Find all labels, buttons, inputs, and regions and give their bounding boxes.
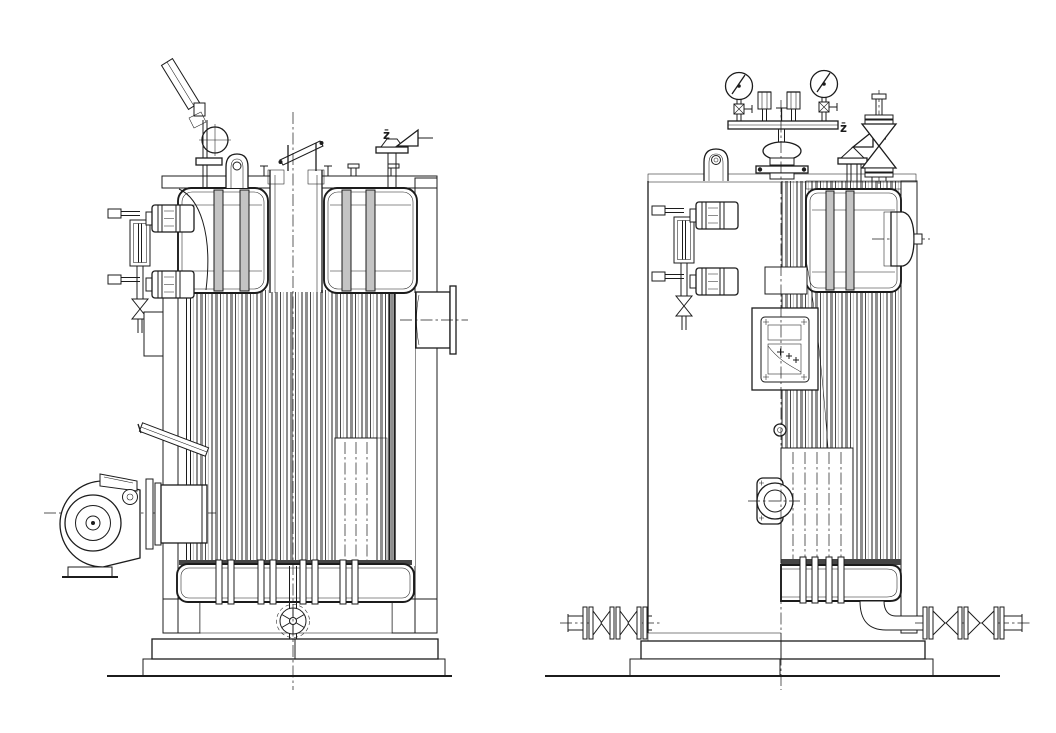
nameplate — [765, 267, 807, 294]
stud-bolt — [348, 164, 359, 176]
chimney — [260, 141, 332, 293]
boiler-drawing: z̄ — [0, 0, 1056, 733]
foundation — [143, 639, 445, 676]
probe-block-left — [758, 92, 771, 121]
lifting-lug — [704, 149, 728, 181]
sight-glass — [774, 424, 786, 436]
burner-barrel — [146, 479, 207, 549]
safety-valve-label: z̄ — [383, 128, 390, 142]
thermometer — [162, 59, 232, 188]
probe-block-right — [787, 92, 800, 121]
safety-valve: z̄ — [376, 128, 433, 188]
boiler-drawing-sheet: z̄ — [0, 0, 1056, 733]
stud-bolt — [388, 164, 399, 176]
lifting-lug — [226, 154, 248, 188]
control-panel — [752, 308, 818, 390]
pressure-gauge-right — [811, 71, 838, 122]
bottom-header — [781, 557, 901, 603]
main-steam-valve — [756, 108, 808, 179]
blowdown-valves-left — [560, 607, 660, 639]
safety-valve-label: z̄ — [840, 121, 847, 135]
gauge-siphon-ring — [199, 124, 231, 156]
tube-bank — [187, 290, 416, 566]
left-elevation-view: z̄ — [44, 59, 468, 690]
steam-header — [806, 181, 901, 292]
right-elevation-view: z̄ — [545, 71, 1030, 691]
pressure-gauge-left — [726, 73, 753, 122]
wall-bracket — [144, 312, 163, 356]
foundation — [630, 641, 933, 676]
bottom-seam-band — [648, 633, 781, 641]
